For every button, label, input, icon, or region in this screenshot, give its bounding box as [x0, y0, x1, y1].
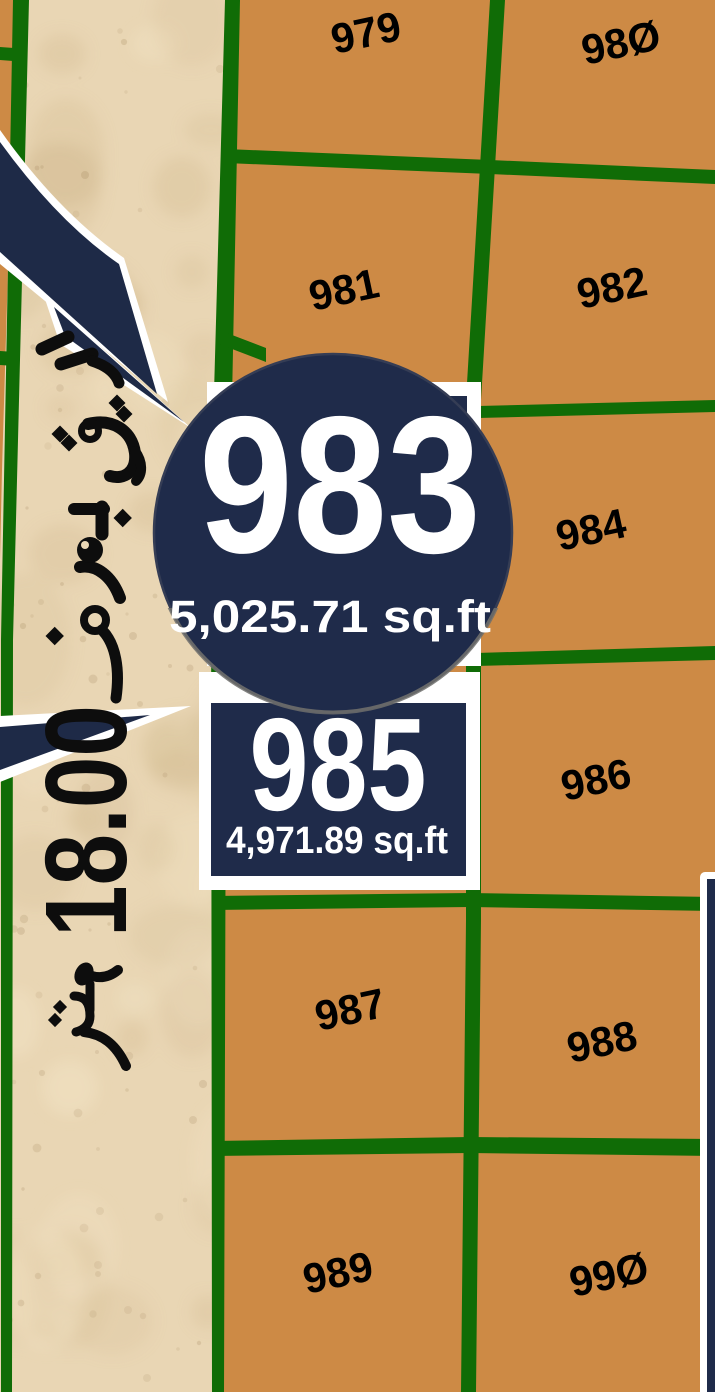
svg-text:5,025.71 sq.ft: 5,025.71 sq.ft: [169, 591, 491, 642]
svg-text:983: 983: [199, 376, 481, 594]
svg-text:18.00: 18.00: [21, 705, 151, 937]
svg-text:4,971.89 sq.ft: 4,971.89 sq.ft: [226, 820, 448, 862]
